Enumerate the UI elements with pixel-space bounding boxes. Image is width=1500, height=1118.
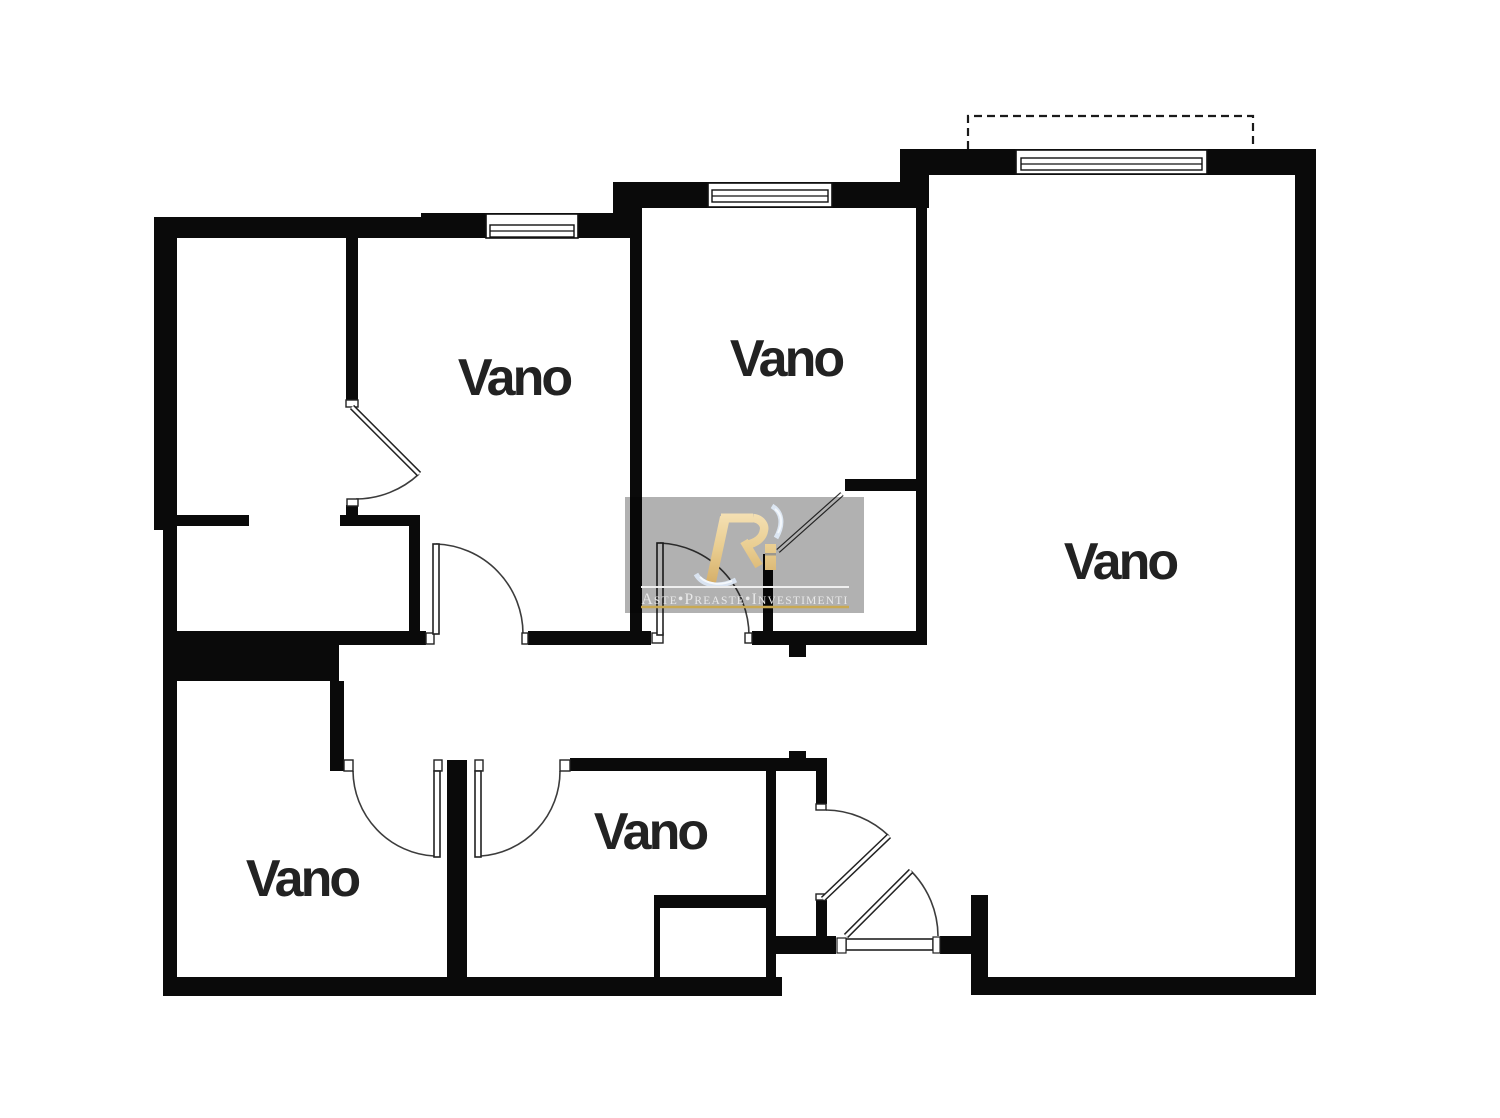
svg-text:Vano: Vano	[594, 803, 707, 861]
svg-text:Vano: Vano	[458, 349, 571, 407]
svg-text:Vano: Vano	[246, 850, 359, 908]
svg-text:Vano: Vano	[730, 330, 843, 388]
svg-text:Vano: Vano	[1064, 533, 1177, 591]
